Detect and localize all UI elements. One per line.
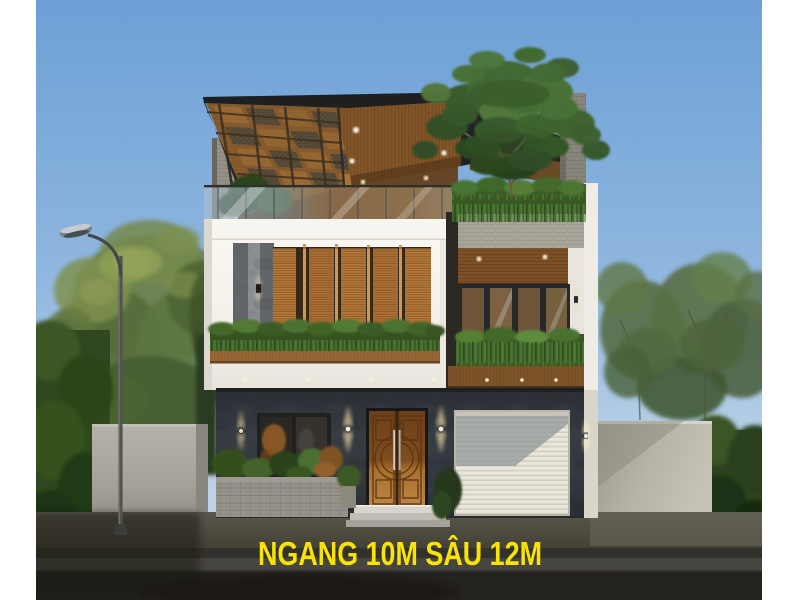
- svg-text:NGANG 10M SÂU 12M: NGANG 10M SÂU 12M: [258, 535, 542, 573]
